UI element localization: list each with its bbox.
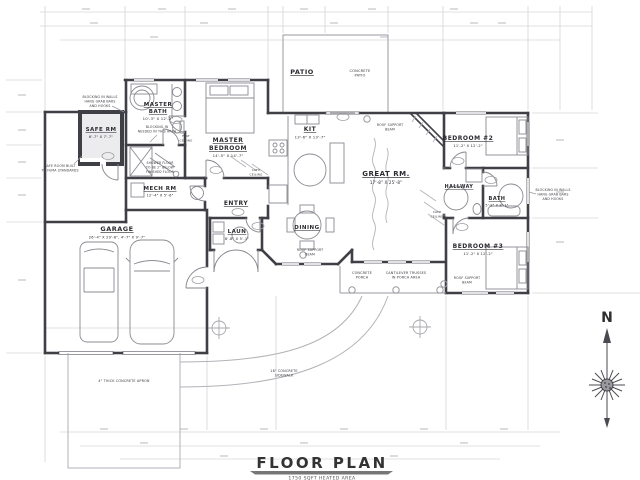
note-shower-3: FINISHED FLOOR — [146, 170, 175, 174]
room-label-garage: GARAGE — [100, 225, 133, 233]
compass-rays — [589, 328, 625, 428]
survey-markers — [208, 316, 431, 339]
note-apron: 4" THICK CONCRETE APRON — [98, 379, 150, 383]
compass-rose: N — [589, 310, 625, 428]
master-bed — [206, 83, 254, 133]
garage-entry-door — [186, 267, 207, 288]
room-label-safe-rm: SAFE RM — [86, 127, 117, 133]
note-concrete-porch-2: PORCH — [356, 276, 369, 280]
room-dims-bedroom3: 11'-2" X 12'-2" — [463, 252, 492, 256]
note-blocking-bath-1: BLOCKING IN — [146, 125, 169, 129]
note-safe-room-2: TO FEMA STANDARDS — [40, 169, 78, 173]
pickup-truck — [80, 242, 118, 342]
room-label-hallway: HALLWAY — [445, 184, 474, 190]
room-label-patio: PATIO — [290, 68, 314, 76]
room-label-bedroom3: BEDROOM #3 — [453, 243, 504, 250]
note-safe-room-1: SAFE ROOM BUILT — [44, 164, 75, 168]
note-flat-ceiling-2: CEILING — [179, 139, 193, 143]
north-arrowhead — [603, 328, 611, 343]
window — [526, 178, 531, 204]
note-shower-1: SHOWER FLOOR — [146, 161, 174, 165]
master-bedroom-door — [206, 160, 224, 178]
room-label-bath: BATH — [489, 196, 506, 202]
room-label-master-bedroom-2: BEDROOM — [209, 145, 247, 152]
window — [196, 78, 218, 83]
note-blocking-left-3: AND HOOKS — [90, 104, 111, 108]
safe-room-door — [102, 164, 118, 180]
south-arrowhead — [604, 418, 610, 428]
note-roof-beam-bed3-2: BEAM — [462, 281, 472, 285]
window — [228, 78, 250, 83]
title-underline — [250, 471, 393, 475]
note-cath-ceiling2-1: CATH — [433, 210, 442, 214]
note-cath-ceiling1-1: CATH — [252, 168, 261, 172]
room-label-laun: LAUN — [228, 229, 247, 235]
note-concrete-patio-1: CONCRETE — [350, 69, 372, 73]
room-label-master-bedroom-1: MASTER — [213, 137, 244, 144]
note-blocking-left-2: HANG GRAB BARS — [84, 100, 115, 104]
room-label-great-rm: GREAT RM. — [362, 170, 410, 178]
window — [282, 262, 299, 267]
room-label-kit: KIT — [304, 126, 317, 133]
window — [364, 260, 382, 265]
room-dims-mech-rm: 12'-4" X 5'-6" — [147, 194, 174, 198]
note-concrete-patio-2: PATIO — [355, 74, 366, 78]
porch — [300, 116, 447, 293]
note-cath-ceiling1-2: CEILING — [249, 173, 263, 177]
room-label-bedroom2: BEDROOM #2 — [443, 135, 494, 142]
note-roof-beam-dining-2: BEAM — [305, 253, 315, 257]
note-blocking-left-1: BLOCKING IN WALLS — [82, 95, 117, 99]
window — [462, 291, 488, 296]
laundry-door — [246, 218, 260, 232]
window — [304, 262, 321, 267]
note-blocking-right-2: HANG GRAB BARS — [537, 193, 568, 197]
concrete-apron-outline — [68, 353, 180, 468]
note-roof-beam-dining-1: ROOF SUPPORT — [297, 248, 324, 252]
window — [496, 291, 514, 296]
garage-door-openings — [58, 352, 196, 355]
title-block: FLOOR PLAN 1750 SQFT HEATED AREA — [250, 454, 393, 480]
note-shower-2: TO BE 2" BELOW — [145, 166, 174, 170]
window — [412, 260, 430, 265]
floor-plan-drawing: PATIO CONCRETE PATIO MASTER BATH 10'-3" … — [0, 0, 640, 480]
hall-cased-opening — [443, 168, 446, 215]
note-blocking-right-3: AND HOOKS — [543, 197, 564, 201]
room-label-master-bath-1: MASTER — [144, 102, 173, 108]
room-dims-master-bedroom: 14'-5" X 14'-7" — [213, 153, 244, 158]
note-roof-beam-great-1: ROOF SUPPORT — [377, 123, 404, 127]
note-cantilever-1: CANTILEVER TRUSSES — [386, 271, 426, 275]
note-flat-ceiling-1: FLAT — [182, 134, 190, 138]
window — [134, 78, 154, 83]
note-concrete-porch-1: CONCRETE — [352, 271, 372, 275]
note-cath-ceiling2-2: CEILING — [430, 215, 444, 219]
room-label-mech-rm: MECH RM — [144, 186, 177, 192]
grid-lines — [6, 6, 640, 462]
room-dims-laun: 8'-8" X 5'-1" — [225, 237, 250, 241]
room-dims-bath: 5'-8" X 8'-1" — [485, 204, 508, 208]
window — [388, 260, 406, 265]
north-label: N — [601, 310, 613, 326]
safe-room-walls — [80, 112, 122, 166]
floor-plan-svg: PATIO CONCRETE PATIO MASTER BATH 10'-3" … — [0, 0, 640, 480]
room-label-master-bath-2: BATH — [149, 109, 167, 115]
note-blocking-bath-2: NEEDED IN THIS AREA — [138, 130, 177, 134]
fixtures — [80, 83, 528, 344]
note-sidewalk-2: SIDEWALK — [275, 374, 294, 378]
room-dims-garage: 26'-4" X 29'-8", 4'-7" X 9'-7" — [89, 236, 146, 240]
note-roof-beam-great-2: BEAM — [385, 128, 395, 132]
window — [456, 111, 486, 116]
room-dims-bedroom2: 11'-2" X 12'-2" — [453, 144, 482, 148]
front-double-door — [214, 250, 258, 272]
drawing-title: FLOOR PLAN — [256, 454, 387, 472]
note-roof-beam-bed3-1: ROOF SUPPORT — [454, 276, 481, 280]
room-dims-great-rm: 17'-8" X 25'-8" — [370, 180, 402, 185]
note-cantilever-2: IN PORCH AREA — [392, 276, 421, 280]
room-dims-safe-rm: 6'-7" X 7'-7" — [89, 135, 114, 139]
drawing-subtitle: 1750 SQFT HEATED AREA — [288, 476, 356, 480]
room-dims-master-bath: 10'-3" X 12'-2" — [143, 116, 174, 121]
room-label-dining: DINING — [294, 225, 319, 231]
roof-post — [364, 116, 370, 122]
bedroom3-door — [453, 218, 469, 234]
room-dims-kit: 13'-6" X 13'-7" — [295, 135, 326, 140]
note-sidewalk-1: 18" CONCRETE — [270, 369, 297, 373]
room-label-entry: ENTRY — [224, 200, 249, 207]
note-blocking-right-1: BLOCKING IN WALLS — [535, 188, 570, 192]
